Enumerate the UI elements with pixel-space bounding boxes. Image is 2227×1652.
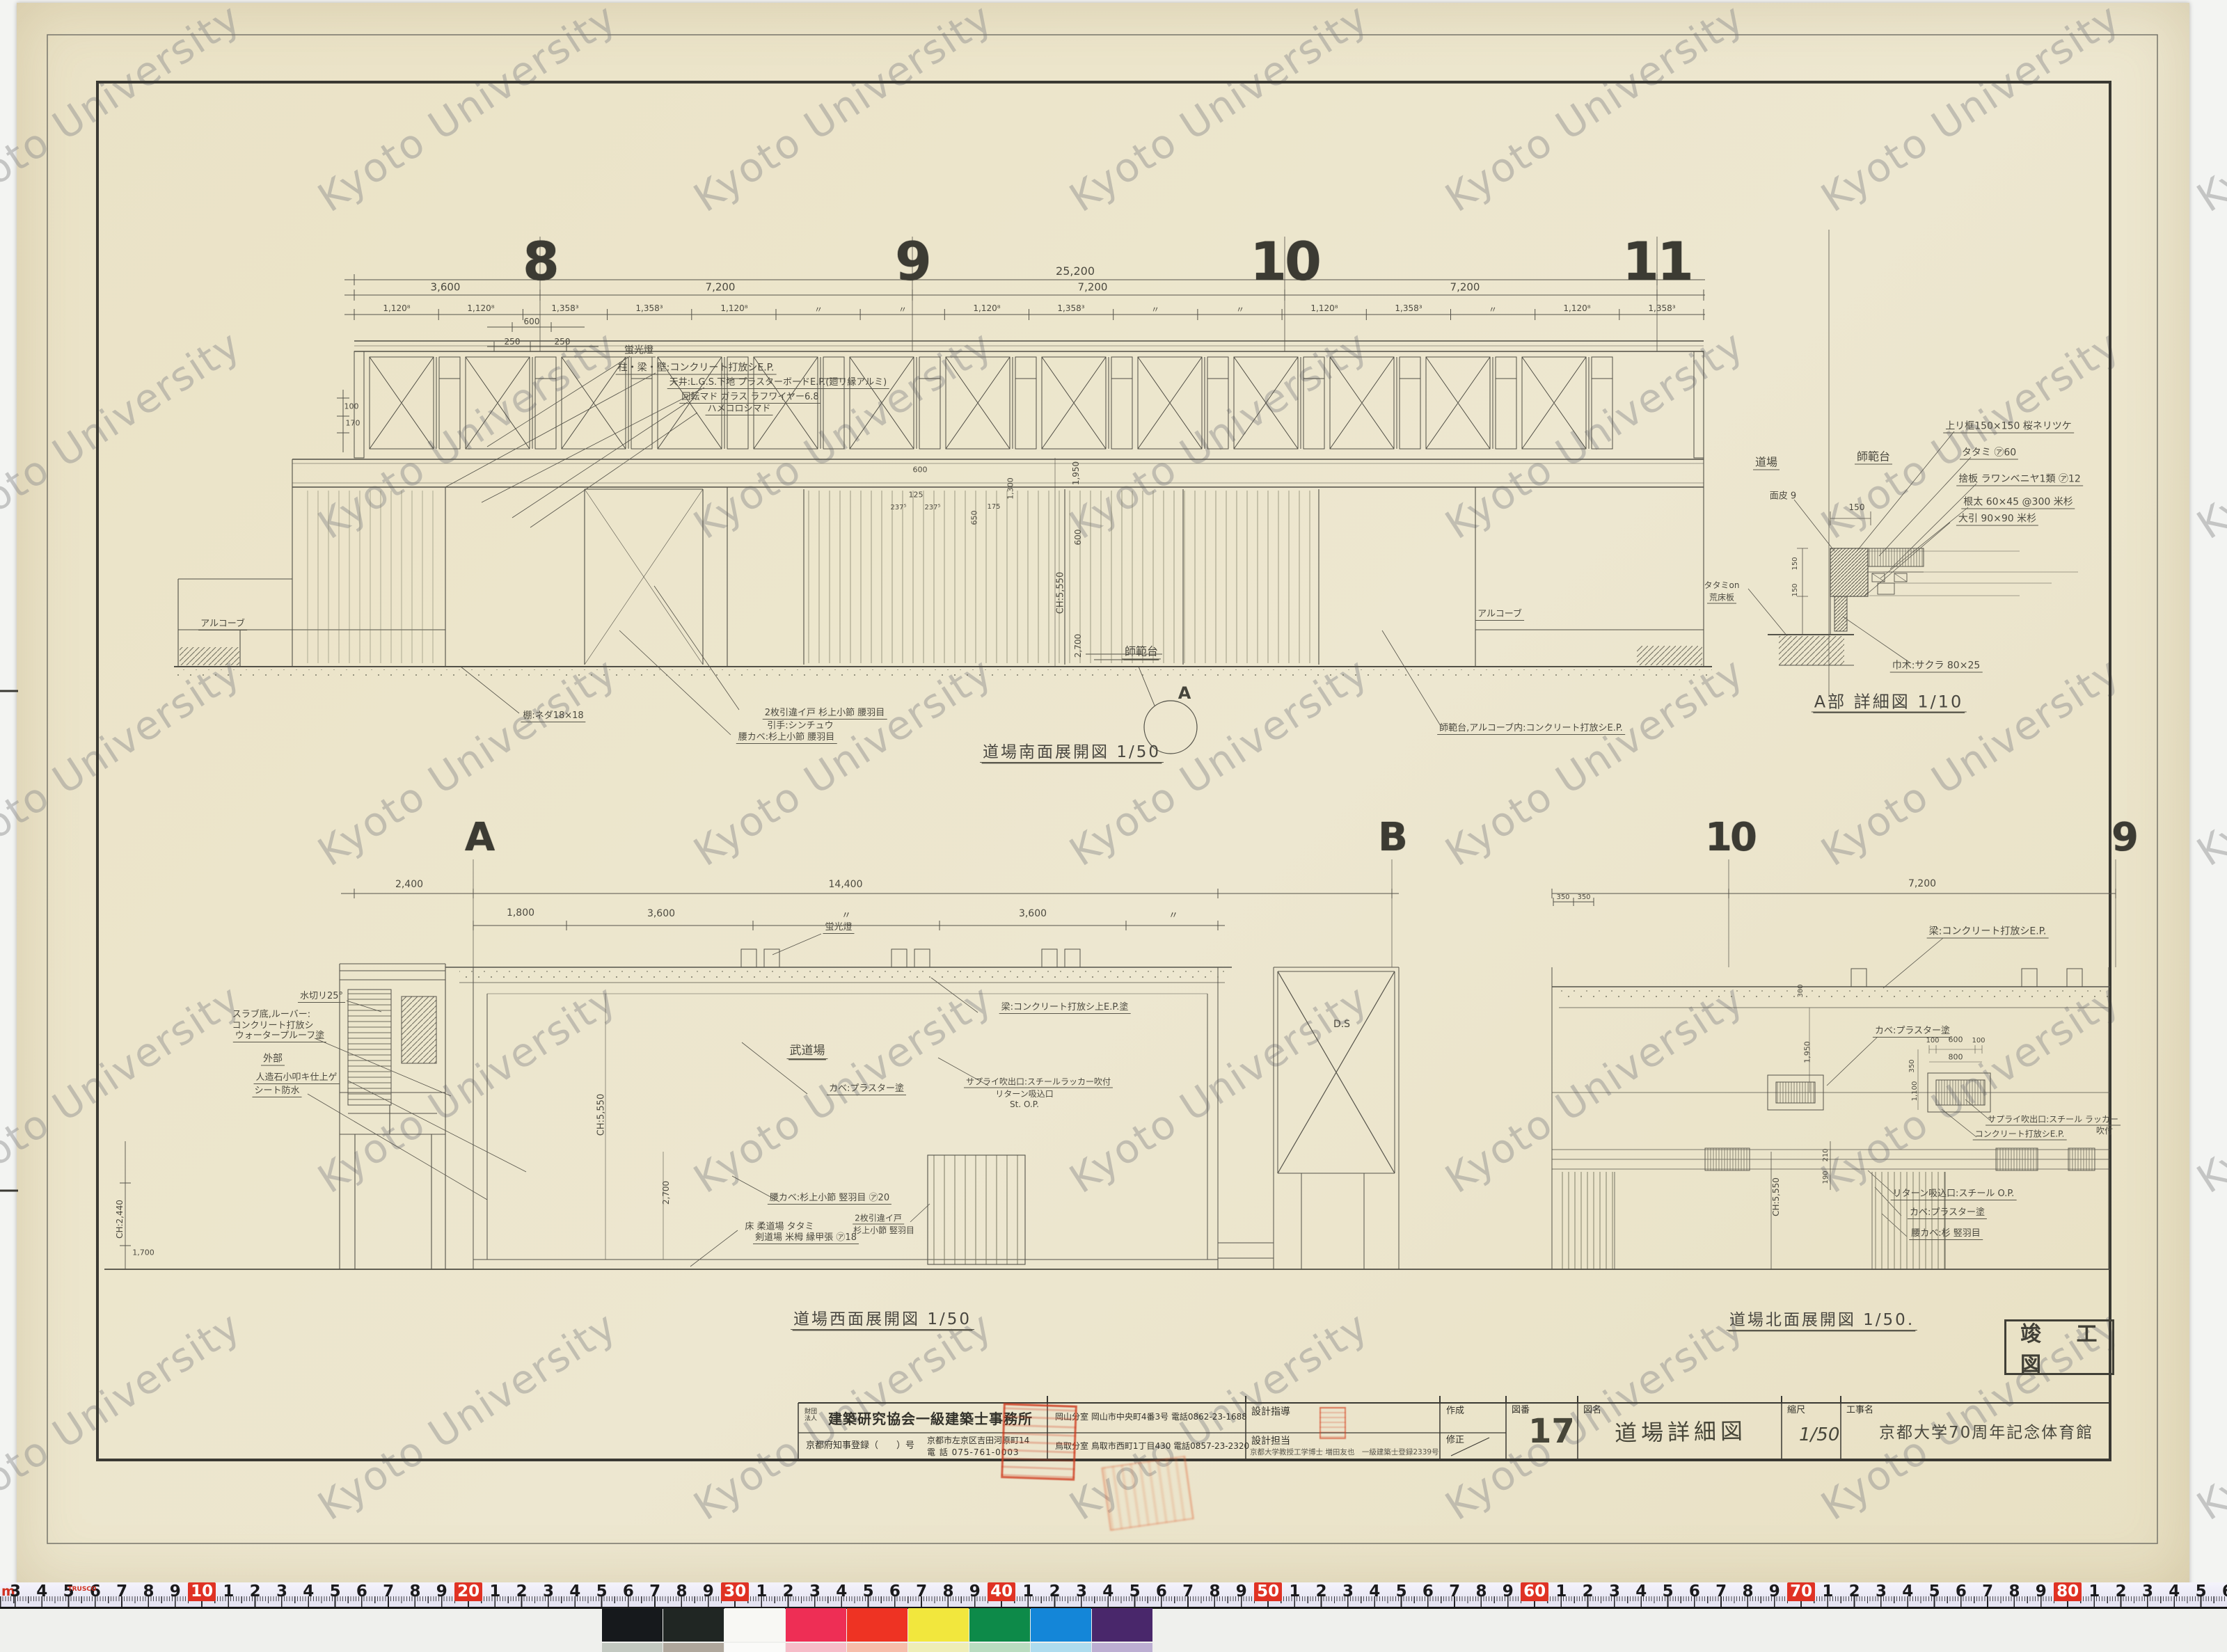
ruler-number: 20 <box>454 1582 482 1601</box>
drawing-label: 150 <box>1792 557 1799 570</box>
drawing-label: 蛍光燈 <box>823 923 854 934</box>
drawing-label: 師範台 <box>1855 452 1892 465</box>
ruler-number: 7 <box>116 1582 127 1601</box>
drawing-label: 水切リ25° <box>298 992 345 1003</box>
ruler-number: 2 <box>783 1582 794 1601</box>
drawing-label: 150 <box>1792 583 1799 596</box>
color-patch <box>663 1608 724 1642</box>
design-charge-label: 設計担当 <box>1251 1436 1290 1447</box>
color-patch <box>663 1643 724 1652</box>
drawing-label: 〃 <box>898 305 907 314</box>
drawing-label: 237⁵ <box>890 505 906 511</box>
ruler-number: 40 <box>988 1582 1015 1601</box>
drawing-caption: 道場南面展開図 1/50 <box>980 745 1164 763</box>
scale-value: 1/50 <box>1799 1425 1839 1446</box>
drawing-label: A <box>1178 685 1191 701</box>
drawing-label: 1,700 <box>132 1249 154 1257</box>
drawing-label: 600 <box>1074 530 1082 546</box>
color-patch <box>969 1608 1030 1642</box>
ruler-number: 8 <box>1209 1582 1220 1601</box>
color-patch <box>908 1643 969 1652</box>
ruler-number: 2 <box>250 1582 261 1601</box>
drawing-label: カベ:プラスター塗 <box>1873 1026 1952 1038</box>
ruler-number: 7 <box>1715 1582 1727 1601</box>
ruler-number: 6 <box>356 1582 367 1601</box>
drawing-label: 125 <box>909 491 924 499</box>
drawing-label: サプライ吹出口:スチール ラッカー <box>1986 1115 2121 1126</box>
ruler-number: 6 <box>1422 1582 1434 1601</box>
ruler-number: 7 <box>916 1582 927 1601</box>
color-patch <box>602 1643 663 1652</box>
drawing-label: 上リ框150×150 桜ネリツケ <box>1943 422 2074 434</box>
ruler-number: 6 <box>623 1582 634 1601</box>
ruler-number: 60 <box>1521 1582 1548 1601</box>
drawing-label: CH:2,440 <box>116 1200 124 1239</box>
ruler-number: 7 <box>383 1582 394 1601</box>
ruler-number: 8 <box>409 1582 420 1601</box>
ruler-number: 3 <box>543 1582 554 1601</box>
ruler-number: 4 <box>1102 1582 1113 1601</box>
ruler-number: 3 <box>1342 1582 1354 1601</box>
ruler-number: 4 <box>36 1582 47 1601</box>
drawing-label: アルコーブ <box>198 619 247 630</box>
ruler-number: 80 <box>2054 1582 2082 1601</box>
ruler-number: 70 <box>1787 1582 1815 1601</box>
drawing-label: 2,400 <box>395 880 423 889</box>
color-patch <box>847 1643 908 1652</box>
ruler-number: 2 <box>2116 1582 2127 1601</box>
ruler-number: 2 <box>1049 1582 1061 1601</box>
drawing-label: 1,120⁸ <box>720 304 747 312</box>
drawing-caption: 道場北面展開図 1/50. <box>1727 1312 1917 1331</box>
drawing-label: ウォータープルーフ塗 <box>233 1031 326 1042</box>
grid-mark: 9 <box>895 235 930 288</box>
drawing-label: 〃 <box>1151 305 1159 314</box>
project-name: 京都大学70周年記念体育館 <box>1879 1424 2093 1442</box>
drawing-label: 1,120⁸ <box>1563 304 1590 312</box>
drawing-label: 根太 60×45 @300 米杉 <box>1961 498 2075 509</box>
drawing-label: 25,200 <box>1056 266 1095 277</box>
drawing-label: カベ:プラスター塗 <box>827 1084 906 1095</box>
color-patch <box>847 1608 908 1642</box>
ruler-number: 6 <box>1689 1582 1700 1601</box>
ruler-number: 3 <box>1876 1582 1887 1601</box>
grid-mark: B <box>1378 818 1406 857</box>
drawing-label: 600 <box>913 466 928 474</box>
drawing-label: 3,600 <box>647 909 675 919</box>
drawing-label: 300 <box>1798 984 1805 997</box>
drawing-label: 1,358³ <box>551 304 578 312</box>
drawing-label: 人造石小叩キ仕上ゲ <box>253 1073 339 1084</box>
red-seal-stamp-faint <box>1101 1456 1194 1531</box>
revise-label: 修正 <box>1446 1436 1464 1446</box>
drawing-label: 1,950 <box>1804 1041 1812 1063</box>
ruler-number: 5 <box>1929 1582 1940 1601</box>
ruler-number: 3 <box>2142 1582 2153 1601</box>
drawing-label: 道場 <box>1753 457 1780 470</box>
drawing-caption: A部 詳細図 1/10 <box>1812 694 1967 713</box>
drawing-label: 2,700 <box>1074 634 1082 658</box>
sheet-no-value: 17 <box>1528 1413 1575 1451</box>
ruler-number: 9 <box>1503 1582 1514 1601</box>
drawing-label: St. O.P. <box>1010 1100 1039 1109</box>
drawing-label: 7,200 <box>706 283 736 293</box>
drawing-label: 100 <box>1972 1038 1985 1045</box>
color-patch <box>602 1608 663 1642</box>
grid-mark: 11 <box>1622 235 1692 288</box>
ruler-number: 5 <box>2196 1582 2207 1601</box>
ruler-number: 4 <box>1635 1582 1647 1601</box>
create-label: 作成 <box>1446 1406 1464 1417</box>
ruler-number: 8 <box>942 1582 953 1601</box>
drawing-label: 7,200 <box>1450 283 1480 293</box>
drawing-label: 190 <box>1823 1170 1830 1184</box>
registration: 京都府知事登録（ ）号 <box>806 1441 914 1452</box>
ruler-number: 3 <box>276 1582 287 1601</box>
branch-tottori: 鳥取分室 鳥取市西町1丁目430 電話0857-23-2320 <box>1055 1442 1249 1452</box>
project-label: 工事名 <box>1846 1406 1873 1416</box>
drawing-label: 蛍光燈 <box>622 346 656 358</box>
scale-label: 縮尺 <box>1787 1406 1805 1416</box>
drawing-label: 1,800 <box>507 908 534 918</box>
color-patch <box>969 1643 1030 1652</box>
ruler-number: 3 <box>1609 1582 1620 1601</box>
org-type: 財団法人 <box>805 1408 817 1423</box>
drawing-label: 350 <box>1577 894 1590 901</box>
drawing-label: 3,600 <box>1019 909 1047 919</box>
color-patch <box>1031 1608 1091 1642</box>
color-patch <box>724 1608 785 1642</box>
drawing-label: 1,120⁸ <box>383 304 410 312</box>
sheet-name-value: 道場詳細図 <box>1615 1418 1747 1446</box>
drawing-label: 梁:コンクリート打放シE.P. <box>1927 927 2049 939</box>
ruler-number: 1 <box>1289 1582 1300 1601</box>
drawing-label: 〃 <box>1236 305 1244 314</box>
sheet-name-label: 図名 <box>1583 1406 1601 1416</box>
drawing-label: 〃 <box>1489 305 1497 314</box>
drawing-label: 250 <box>555 337 571 346</box>
drawing-label: 巾木:サクラ 80×25 <box>1890 661 1983 673</box>
drawing-label: 210 <box>1823 1148 1830 1161</box>
red-seal-stamp <box>1001 1403 1077 1481</box>
ruler-number: 2 <box>1849 1582 1860 1601</box>
ruler-number: 10 <box>188 1582 216 1601</box>
ruler-number: 8 <box>676 1582 687 1601</box>
drawing-label: 1,358³ <box>635 304 663 312</box>
design-lead-label: 設計指導 <box>1251 1406 1290 1417</box>
drawing-label: 外部 <box>261 1054 285 1066</box>
sheet-no-label: 図番 <box>1512 1406 1530 1416</box>
ruler-number: 4 <box>1369 1582 1380 1601</box>
ruler-number: 1 <box>1022 1582 1033 1601</box>
drawing-label: D.S <box>1333 1019 1350 1029</box>
ruler-number: 1 <box>756 1582 767 1601</box>
drawing-label: 回転マド ガラス ラフワイヤー6.8 <box>679 392 821 404</box>
grid-mark: 8 <box>523 235 557 288</box>
drawing-label: 剣道場 米栂 縁甲張 ㋐18 <box>753 1233 859 1244</box>
drawing-linework <box>0 0 2227 1652</box>
color-patch <box>1031 1643 1091 1652</box>
completion-drawing-stamp: 竣 工 図 <box>2004 1319 2114 1375</box>
drawing-label: カベ:プラスター塗 <box>1908 1208 1987 1219</box>
drawing-label: 腰カベ:杉 竪羽目 <box>1909 1229 1983 1240</box>
ruler-number: 1 <box>489 1582 500 1601</box>
ruler-number: 3 <box>1076 1582 1087 1601</box>
ruler-number: 6 <box>1956 1582 1967 1601</box>
ruler-number: 1 <box>223 1582 234 1601</box>
color-patch <box>908 1608 969 1642</box>
drawing-label: CH:5,550 <box>1772 1177 1780 1216</box>
drawing-label: コンクリート打放シ <box>232 1022 313 1031</box>
ruler-number: 9 <box>436 1582 447 1601</box>
ruler-number: 6 <box>1156 1582 1167 1601</box>
drawing-label: 14,400 <box>829 880 863 889</box>
drawing-label: CH:5,550 <box>597 1094 606 1136</box>
ruler-number: 4 <box>836 1582 847 1601</box>
ruler-number: 5 <box>330 1582 341 1601</box>
ruler-number: 5 <box>1663 1582 1674 1601</box>
drawing-label: 150 <box>1849 503 1865 511</box>
drawing-label: 天井:L.G.S.下地 プラスターボードE.P.(廻リ縁アルミ) <box>667 378 889 389</box>
drawing-label: 梁:コンクリート打放シ上E.P.塗 <box>999 1003 1131 1014</box>
branch-okayama: 岡山分室 岡山市中央町4番3号 電話0862-23-1688 <box>1055 1413 1247 1422</box>
drawing-label: リターン吸込口:スチール O.P. <box>1891 1189 2017 1200</box>
drawing-label: シート防水 <box>252 1086 301 1097</box>
design-charge-name: 京都大学教授工学博士 増田友也 一級建築士登録2339号 <box>1250 1448 1439 1456</box>
drawing-label: 〃 <box>841 911 851 921</box>
drawing-label: 600 <box>1949 1036 1963 1044</box>
ruler-number: 7 <box>1982 1582 1993 1601</box>
ruler-number: 9 <box>170 1582 181 1601</box>
grid-mark: 10 <box>1250 235 1319 288</box>
red-seal-small <box>1319 1407 1346 1439</box>
drawing-label: 〃 <box>814 305 823 314</box>
ruler-number: 5 <box>596 1582 608 1601</box>
ruler-number: 2 <box>1316 1582 1327 1601</box>
ruler-number: 1 <box>1822 1582 1833 1601</box>
drawing-label: 大引 90×90 米杉 <box>1956 514 2038 526</box>
drawing-label: 捨板 ラワンベニヤ1類 ㋐12 <box>1956 475 2083 486</box>
ruler-number: 1 <box>1555 1582 1567 1601</box>
drawing-label: スラブ底,ルーバー: <box>232 1010 310 1019</box>
color-patch <box>1092 1608 1152 1642</box>
ruler-number: 3 <box>809 1582 821 1601</box>
drawing-label: 250 <box>505 337 521 346</box>
color-patch <box>786 1608 846 1642</box>
ruler-number: 5 <box>1130 1582 1141 1601</box>
scanned-architectural-drawing: Kyoto UniversityKyoto UniversityKyoto Un… <box>0 0 2227 1652</box>
ruler-number: 8 <box>143 1582 154 1601</box>
drawing-label: 350 <box>1556 894 1569 901</box>
drawing-label: タタミ ㋐60 <box>1960 448 2018 460</box>
ruler-number: 9 <box>703 1582 714 1601</box>
drawing-label: 350 <box>1909 1059 1916 1072</box>
ruler-number: 7 <box>649 1582 660 1601</box>
drawing-label: 面皮 9 <box>1770 492 1796 501</box>
drawing-label: 1,100 <box>1912 1081 1919 1102</box>
drawing-label: 170 <box>346 420 360 427</box>
drawing-label: 100 <box>1926 1038 1939 1045</box>
ruler-number: 7 <box>1182 1582 1194 1601</box>
ruler-number: 7 <box>1449 1582 1460 1601</box>
drawing-label: アルコーブ <box>1475 610 1524 621</box>
drawing-label: 床 柔道場 タタミ <box>745 1223 814 1232</box>
drawing-label: 1,300 <box>1007 477 1015 500</box>
grid-mark: A <box>465 818 493 857</box>
drawing-label: 杉上小節 竪羽目 <box>853 1226 914 1234</box>
drawing-label: 武道場 <box>787 1045 828 1059</box>
drawing-caption: 道場西面展開図 1/50 <box>791 1312 974 1330</box>
color-patch <box>1092 1643 1152 1652</box>
drawing-label: 100 <box>344 403 359 411</box>
drawing-label: 2枚引違イ戸 杉上小節 腰羽目 <box>763 708 887 720</box>
ruler-number: 9 <box>1769 1582 1780 1601</box>
measuring-tape: m 34567891012345678920123456789301234567… <box>0 1582 2227 1609</box>
ruler-number: 1 <box>2089 1582 2100 1601</box>
drawing-label: 荒床板 <box>1707 594 1736 604</box>
drawing-label: 1,358³ <box>1648 304 1675 312</box>
ruler-number: 4 <box>1902 1582 1913 1601</box>
ruler-number: 8 <box>1742 1582 1753 1601</box>
ruler-number: 30 <box>721 1582 749 1601</box>
drawing-label: 1,358³ <box>1057 304 1084 312</box>
drawing-label: 1,358³ <box>1395 304 1422 312</box>
drawing-label: 師範台,アルコーブ内:コンクリート打放シE.P. <box>1437 724 1625 735</box>
color-patch <box>786 1643 846 1652</box>
ruler-brand: TRUSCO <box>68 1586 96 1593</box>
drawing-label: タタミon <box>1704 581 1740 589</box>
drawing-label: 棚:ネダ18×18 <box>521 711 585 722</box>
ruler-number: 6 <box>889 1582 901 1601</box>
ruler-number: 9 <box>2036 1582 2047 1601</box>
drawing-label: リターン吸込口 <box>995 1090 1053 1098</box>
drawing-label: 腰カベ:杉上小節 竪羽目 ㋐20 <box>768 1193 891 1205</box>
ruler-number: 4 <box>569 1582 580 1601</box>
ruler-number: 4 <box>2169 1582 2180 1601</box>
drawing-label: 1,950 <box>1072 461 1080 485</box>
drawing-label: 吹付 <box>2096 1127 2113 1135</box>
drawing-label: 1,120⁸ <box>973 304 1000 312</box>
ruler-number: 8 <box>2008 1582 2020 1601</box>
drawing-label: ハメコロシマド <box>705 404 772 415</box>
ruler-number: 8 <box>1475 1582 1487 1601</box>
drawing-label: サプライ吹出口:スチールラッカー吹付 <box>964 1078 1113 1088</box>
drawing-label: CH:5,550 <box>1056 572 1065 614</box>
drawing-label: 237⁵ <box>924 505 940 511</box>
drawing-label: 3,600 <box>431 283 461 293</box>
drawing-label: 600 <box>524 317 540 326</box>
ruler-number: 2 <box>516 1582 528 1601</box>
drawing-label: 650 <box>971 511 978 525</box>
ruler-number: 9 <box>1236 1582 1247 1601</box>
drawing-label: 腰カベ:杉上小節 腰羽目 <box>736 733 837 744</box>
ruler-number: 50 <box>1254 1582 1282 1601</box>
drawing-label: 〃 <box>1168 911 1178 921</box>
drawing-label: 800 <box>1949 1054 1963 1061</box>
ruler-number: 9 <box>969 1582 981 1601</box>
ruler-number: 5 <box>1396 1582 1407 1601</box>
drawing-label: 引手:シンチュウ <box>767 722 833 731</box>
ruler-number: 6 <box>2222 1582 2227 1601</box>
ruler-number: 4 <box>303 1582 314 1601</box>
drawing-label: 師範台 <box>1122 646 1161 660</box>
drawing-label: 1,120⁸ <box>467 304 494 312</box>
drawing-label: 1,120⁸ <box>1310 304 1338 312</box>
grid-mark: 10 <box>1705 818 1755 857</box>
drawing-label: 2枚引違イ戸 <box>853 1214 904 1225</box>
drawing-label: 7,200 <box>1078 283 1108 293</box>
ruler-number: 5 <box>863 1582 874 1601</box>
ruler-number: 2 <box>1583 1582 1594 1601</box>
drawing-label: 2,700 <box>662 1181 670 1205</box>
grid-mark: 9 <box>2111 818 2137 857</box>
ruler-number: 3 <box>10 1582 21 1601</box>
drawing-label: コンクリート打放シE.P. <box>1973 1130 2067 1141</box>
drawing-label: 7,200 <box>1908 879 1936 889</box>
drawing-label: 175 <box>987 504 1000 511</box>
drawing-label: 柱・梁・壁:コンクリート打放シE.P. <box>616 363 777 375</box>
color-patch <box>724 1643 785 1652</box>
